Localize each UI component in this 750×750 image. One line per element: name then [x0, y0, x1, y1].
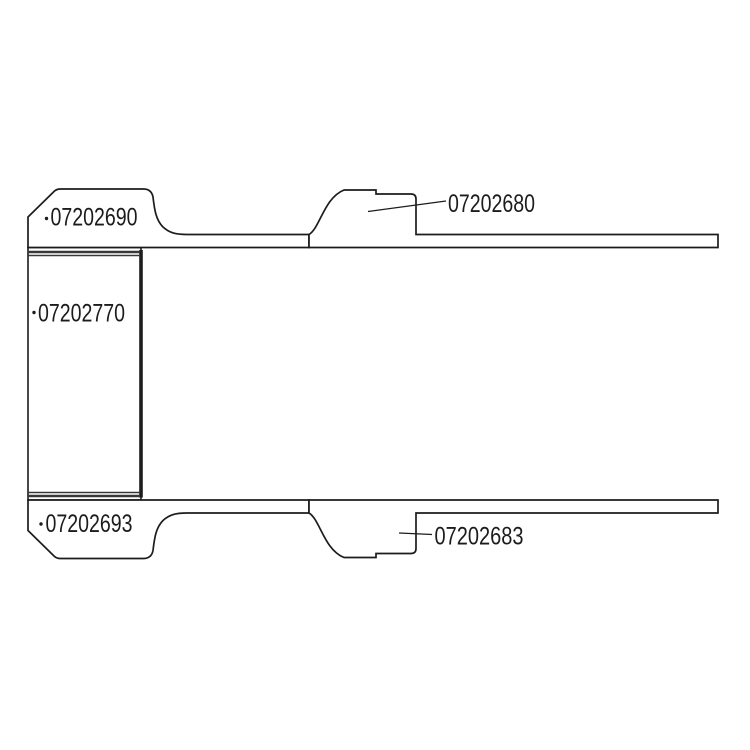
- part-label-top-left: 07202690: [51, 204, 138, 232]
- leader-dot-sleeve: [32, 311, 35, 314]
- drawing-canvas: 07202690 07202680 07202770 07202693 0720…: [0, 0, 750, 750]
- part-label-bottom-left: 07202693: [46, 510, 133, 538]
- part-label-sleeve: 07202770: [38, 300, 125, 328]
- sleeve-outline: [28, 248, 141, 501]
- leader-dot-bottom-left: [39, 522, 42, 525]
- technical-drawing: 07202690 07202680 07202770 07202693 0720…: [0, 0, 750, 750]
- part-label-bottom-right: 07202683: [435, 523, 524, 551]
- leader-dot-top-left: [45, 217, 48, 220]
- part-label-top-right: 07202680: [448, 190, 535, 218]
